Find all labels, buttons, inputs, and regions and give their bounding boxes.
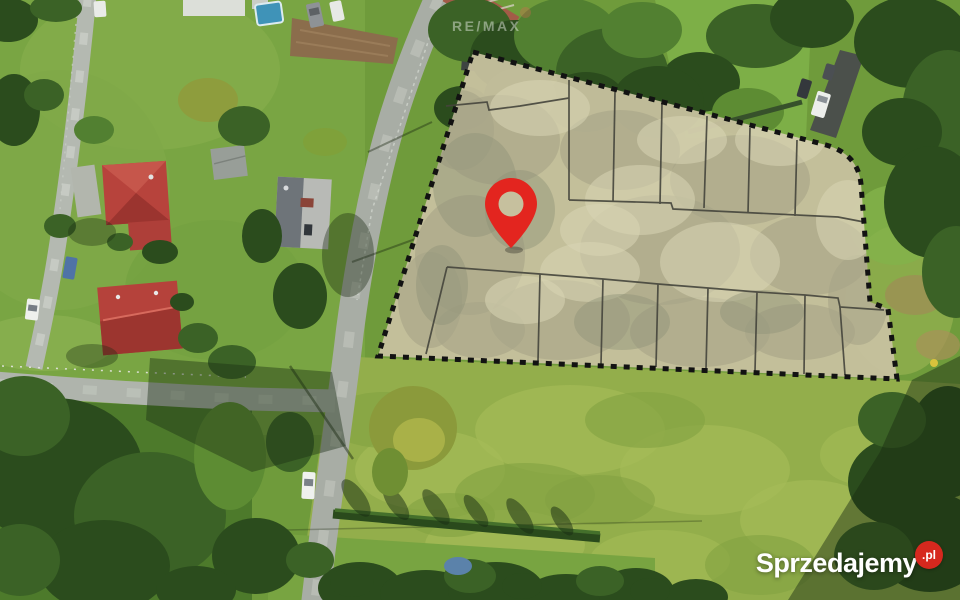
listing-photo: RE/MAX Sprzedajemy .pl xyxy=(0,0,960,600)
chimney xyxy=(116,295,120,299)
yellow-bucket xyxy=(930,359,938,367)
tree xyxy=(273,263,327,329)
roof-panel xyxy=(300,198,313,208)
bush xyxy=(372,448,408,496)
sprzedajemy-logo-text: Sprzedajemy xyxy=(756,548,917,578)
remax-balloon-icon xyxy=(520,7,531,18)
bush xyxy=(170,293,194,311)
tree xyxy=(242,209,282,263)
bush xyxy=(502,573,542,599)
building-top-white xyxy=(183,0,245,16)
aerial-photo xyxy=(0,0,960,600)
bush xyxy=(74,116,114,144)
bush xyxy=(142,240,178,264)
car-far-left xyxy=(93,1,106,18)
shed xyxy=(210,145,248,180)
remax-watermark: RE/MAX xyxy=(452,18,521,34)
bush xyxy=(330,567,374,597)
bush xyxy=(576,566,624,596)
blue-tarp xyxy=(444,557,472,575)
house-shadow xyxy=(66,344,118,368)
remax-watermark-text: RE/MAX xyxy=(452,18,521,34)
bush xyxy=(178,323,218,353)
tree xyxy=(218,106,270,146)
house-shadow xyxy=(322,213,374,297)
house-shadow xyxy=(68,218,116,246)
dry-patch xyxy=(916,330,960,360)
bush xyxy=(286,542,334,578)
spiky-plant xyxy=(303,128,347,156)
pool xyxy=(255,1,284,25)
plot-line xyxy=(804,295,805,374)
pl-badge: .pl xyxy=(915,541,943,569)
pin-hole xyxy=(499,192,524,217)
pin-shadow xyxy=(505,247,523,254)
pl-badge-text: .pl xyxy=(922,548,936,562)
chimney xyxy=(154,291,158,295)
tree xyxy=(24,79,64,111)
sprzedajemy-watermark: Sprzedajemy xyxy=(756,548,917,579)
tree xyxy=(602,2,682,58)
chimney xyxy=(149,175,154,180)
